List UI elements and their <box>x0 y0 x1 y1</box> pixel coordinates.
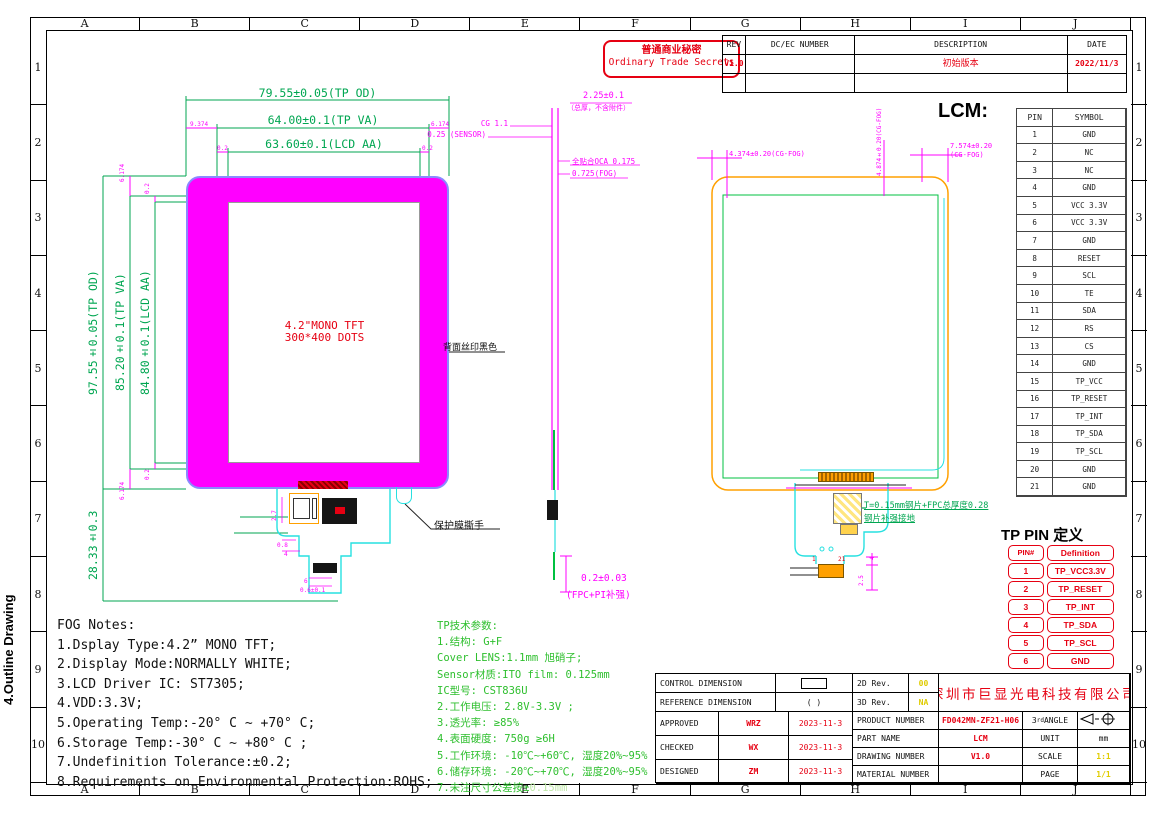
label-qr-box <box>322 498 357 524</box>
tp-parameter-line: IC型号: CST836U <box>437 683 647 699</box>
tp-parameter-line: 1.结构: G+F <box>437 634 647 650</box>
tp-pin-row: 6 GND <box>1008 653 1114 669</box>
side-view-connector <box>547 500 558 520</box>
pin-symbol: TP_SDA <box>1053 426 1126 444</box>
dim-fpc-small-2: 0.8 <box>277 542 288 549</box>
approved-date: 2023-11-3 <box>789 712 853 736</box>
revision-table: REV DC/EC NUMBER DESCRIPTION DATE V1.0 初… <box>722 35 1127 93</box>
pin-symbol: SDA <box>1053 303 1126 321</box>
fog-note-line: 7.Undefinition Tolerance:±0.2; <box>57 753 433 773</box>
pin-number: 1 <box>1017 127 1053 145</box>
description-empty <box>855 74 1068 93</box>
dim-connector-h: 2.5 <box>858 571 865 591</box>
lcm-pin-row: 12 RS <box>1017 320 1126 338</box>
control-dimension-label: CONTROL DIMENSION <box>656 674 776 693</box>
dcec-value <box>746 55 855 74</box>
tolerance-prefix: 7.未注尺寸公差按± <box>437 782 529 794</box>
dim-tp-va-height: 85.20±0.1(TP VA) <box>113 196 127 469</box>
third-angle-symbol <box>1078 712 1130 730</box>
protective-film-tab <box>396 487 412 504</box>
pin-symbol: TP_INT <box>1053 408 1126 426</box>
dim-fpc-small-3: 4 <box>284 551 288 558</box>
pin-symbol: GND <box>1053 232 1126 250</box>
dcec-header: DC/EC NUMBER <box>746 36 855 55</box>
dim-fog: 0.725(FOG) <box>572 169 617 178</box>
product-number-label: PRODUCT NUMBER <box>853 712 939 730</box>
pin-symbol: TP_RESET <box>1053 391 1126 409</box>
front-connector <box>313 563 337 573</box>
lcm-pin-row: 1 GND <box>1017 127 1126 145</box>
material-number-label: MATERIAL NUMBER <box>853 766 939 784</box>
rev-2d-label: 2D Rev. <box>853 674 909 693</box>
pin-symbol: RS <box>1053 320 1126 338</box>
tp-pin-number: 3 <box>1008 599 1044 615</box>
pin-number: 16 <box>1017 391 1053 409</box>
tp-pin-definition: TP_VCC3.3V <box>1047 563 1114 579</box>
pin-number: 4 <box>1017 179 1053 197</box>
pin-symbol: TE <box>1053 285 1126 303</box>
checked-date: 2023-11-3 <box>789 736 853 760</box>
fog-note-line: 8.Requirements on Environmental Protecti… <box>57 773 433 793</box>
third-angle-label: 3rd ANGLE <box>1023 712 1078 730</box>
dim-fpc-small-4: 6 <box>304 578 308 585</box>
control-dimension-symbol <box>776 674 853 693</box>
drawing-number-value: V1.0 <box>939 748 1023 766</box>
revision-row-empty <box>723 74 1127 93</box>
rev-empty <box>723 74 746 93</box>
tp-parameters: TP技术参数: 1.结构: G+FCover LENS:1.1mm 旭硝子;Se… <box>437 618 647 796</box>
tp-pin-row: 3 TP_INT <box>1008 599 1114 615</box>
connector-pin-21: 21 <box>838 556 845 563</box>
angle-word: ANGLE <box>1044 716 1068 725</box>
lcm-pin-row: 10 TE <box>1017 285 1126 303</box>
dim-fpc-thickness: 0.2±0.03 <box>581 573 627 584</box>
steel-sheet-box <box>833 493 862 524</box>
scale-label: SCALE <box>1023 748 1078 766</box>
tp-pin-definition: TP_SCL <box>1047 635 1114 651</box>
angle-ordinal: rd <box>1037 717 1044 724</box>
lcm-pin-row: 13 CS <box>1017 338 1126 356</box>
fog-note-line: 6.Storage Temp:-30° C ~ +80° C ; <box>57 734 433 754</box>
leader-lines <box>405 345 820 575</box>
lcm-pin-row: 7 GND <box>1017 232 1126 250</box>
film-tab-label: 保护膜撕手 <box>434 517 484 532</box>
fpc-bond-strip <box>298 481 348 489</box>
tp-pin-definition: TP_INT <box>1047 599 1114 615</box>
tp-pin-table-title: TP PIN 定义 <box>1001 524 1083 545</box>
tp-pin-definition: TP_SDA <box>1047 617 1114 633</box>
lcm-header-row: PIN SYMBOL <box>1017 109 1126 127</box>
dim-fpc-thickness-note: (FPC+PI补强) <box>566 587 631 601</box>
tp-parameter-line: 6.储存环境: -20℃~+70℃, 湿度20%~95% <box>437 764 647 780</box>
tp-pin-definition: TP_RESET <box>1047 581 1114 597</box>
tp-pin-number: 2 <box>1008 581 1044 597</box>
title-block: CONTROL DIMENSION REFERENCE DIMENSION ( … <box>655 673 1131 783</box>
pin-number: 8 <box>1017 250 1053 268</box>
control-dim-box-icon <box>801 678 827 689</box>
tp-parameter-line: 5.工作环境: -10℃~+60℃, 湿度20%~95% <box>437 748 647 764</box>
fog-notes-items: 1.Dsplay Type:4.2” MONO TFT;2.Display Mo… <box>57 636 433 793</box>
pin-symbol: GND <box>1053 355 1126 373</box>
company-name: 深圳市巨显光电科技有限公司 <box>939 674 1130 712</box>
lcm-pin-rows: 1 GND 2 NC 3 NC 4 GND <box>1017 127 1126 496</box>
pin-number: 9 <box>1017 267 1053 285</box>
dim-fpc-height: 28.33±0.3 <box>86 489 100 601</box>
tp-parameter-line: 3.透光率: ≥85% <box>437 715 647 731</box>
part-name-value: LCM <box>939 730 1023 748</box>
drawing-number-label: DRAWING NUMBER <box>853 748 939 766</box>
lcm-pin-row: 21 GND <box>1017 478 1126 496</box>
tp-pin-table: PIN# Definition 1 TP_VCC3.3V 2 TP_RESET … <box>1008 545 1114 671</box>
pin-number: 13 <box>1017 338 1053 356</box>
lcm-pin-row: 19 TP_SCL <box>1017 443 1126 461</box>
reference-dimension-label: REFERENCE DIMENSION <box>656 693 776 712</box>
designed-label: DESIGNED <box>656 760 719 784</box>
page-value: 1/1 <box>1078 766 1130 784</box>
pin-number: 18 <box>1017 426 1053 444</box>
tp-pin-row: 4 TP_SDA <box>1008 617 1114 633</box>
tp-parameter-line: Sensor材质:ITO film: 0.125mm <box>437 667 647 683</box>
dim-cg-fog-mid: 4.874±0.20(CG-FOG) <box>876 116 883 176</box>
pin-number: 20 <box>1017 461 1053 479</box>
dim-fpc-small-5: 0.6±0.1 <box>300 587 325 594</box>
tp-pin-number: 6 <box>1008 653 1044 669</box>
tp-pin-row: 1 TP_VCC3.3V <box>1008 563 1114 579</box>
stamp-line-cn: 普通商业秘密 <box>605 44 738 57</box>
lcm-pin-row: 6 VCC 3.3V <box>1017 215 1126 233</box>
checked-value: WX <box>719 736 789 760</box>
tp-pin-row: 5 TP_SCL <box>1008 635 1114 651</box>
tp-parameters-title: TP技术参数: <box>437 618 647 634</box>
dim-tp-va-width: 64.00±0.1(TP VA) <box>217 113 429 127</box>
dim-total-thickness-note: （总厚，不含附件） <box>567 103 630 113</box>
pin-number: 2 <box>1017 144 1053 162</box>
panel-resolution: 300*400 DOTS <box>262 332 387 344</box>
steel-note-line1: T=0.15mm钢片+FPC总厚度0.28 <box>864 499 988 511</box>
pin-number: 6 <box>1017 215 1053 233</box>
tp-pin-rows: 1 TP_VCC3.3V 2 TP_RESET 3 TP_INT 4 TP_SD… <box>1008 563 1114 669</box>
pin-number: 21 <box>1017 478 1053 496</box>
lcm-pin-table: PIN SYMBOL 1 GND 2 NC 3 NC <box>1016 108 1127 497</box>
tp-parameters-items: 1.结构: G+FCover LENS:1.1mm 旭硝子;Sensor材质:I… <box>437 634 647 780</box>
dim-lcd-aa-width: 63.60±0.1(LCD AA) <box>228 137 420 151</box>
tp-pin-number: 4 <box>1008 617 1044 633</box>
pin-symbol: TP_VCC <box>1053 373 1126 391</box>
approved-label: APPROVED <box>656 712 719 736</box>
designed-value: ZM <box>719 760 789 784</box>
approved-value: WRZ <box>719 712 789 736</box>
tp-pin-number: 1 <box>1008 563 1044 579</box>
dim-aa-offset-right: 0.2 <box>422 145 433 152</box>
tp-parameter-line: Cover LENS:1.1mm 旭硝子; <box>437 650 647 666</box>
pin-symbol: RESET <box>1053 250 1126 268</box>
pin-number: 5 <box>1017 197 1053 215</box>
pin-number: 7 <box>1017 232 1053 250</box>
lcm-pin-row: 8 RESET <box>1017 250 1126 268</box>
fog-notes: FOG Notes: 1.Dsplay Type:4.2” MONO TFT;2… <box>57 616 433 792</box>
side-view-lines <box>488 103 640 592</box>
steel-note-line2: 钢片补强接地 <box>864 512 915 524</box>
dim-cg-fog-right-2: (CG-FOG) <box>950 151 984 159</box>
fog-note-line: 1.Dsplay Type:4.2” MONO TFT; <box>57 636 433 656</box>
symbol-col-header: SYMBOL <box>1053 109 1126 127</box>
dim-offset-top: 6.174 <box>119 152 126 194</box>
dim-cg-fog-left: 4.374±0.20(CG-FOG) <box>729 150 805 158</box>
dim-oca: 全贴合OCA 0.175 <box>572 156 635 167</box>
back-connector <box>818 564 844 578</box>
fog-notes-title: FOG Notes: <box>57 616 433 636</box>
panel-spec-text: 4.2"MONO TFT 300*400 DOTS <box>262 320 387 344</box>
tp-parameter-last-line: 7.未注尺寸公差按±0.15mm <box>437 780 647 796</box>
reference-dimension-symbol: ( ) <box>776 693 853 712</box>
back-silkscreen-label: 背面丝印黑色 <box>443 340 497 353</box>
lcm-pin-row: 11 SDA <box>1017 303 1126 321</box>
scale-value: 1:1 <box>1078 748 1130 766</box>
lcm-pin-row: 2 NC <box>1017 144 1126 162</box>
pin-symbol: GND <box>1053 179 1126 197</box>
dim-total-thickness: 2.25±0.1 <box>583 91 624 101</box>
material-number-value <box>939 766 1023 784</box>
pin-symbol: GND <box>1053 461 1126 479</box>
unit-label: UNIT <box>1023 730 1078 748</box>
dcec-empty <box>746 74 855 93</box>
lcm-pin-row: 17 TP_INT <box>1017 408 1126 426</box>
checked-label: CHECKED <box>656 736 719 760</box>
lcm-pin-row: 14 GND <box>1017 355 1126 373</box>
tolerance-value: 0.15mm <box>529 782 567 794</box>
part-name-label: PART NAME <box>853 730 939 748</box>
pin-symbol: CS <box>1053 338 1126 356</box>
fpc-ic-box <box>293 498 310 519</box>
dim-cover-glass: CG 1.1 <box>470 119 508 128</box>
tp-def-col-header: Definition <box>1047 545 1114 561</box>
pin-number: 19 <box>1017 443 1053 461</box>
dim-tp-od-height: 97.55±0.05(TP OD) <box>86 176 100 489</box>
dim-tp-od-width: 79.55±0.05(TP OD) <box>186 86 449 100</box>
fog-note-line: 5.Operating Temp:-20° C ~ +70° C; <box>57 714 433 734</box>
revision-row: V1.0 初始版本 2022/11/3 <box>723 55 1127 74</box>
page-label: PAGE <box>1023 766 1078 784</box>
tp-pin-row: 2 TP_RESET <box>1008 581 1114 597</box>
pin-symbol: GND <box>1053 127 1126 145</box>
description-value: 初始版本 <box>855 55 1068 74</box>
back-dimension-lines <box>697 140 962 590</box>
dim-offset-right: 6.174 <box>431 121 449 128</box>
steel-sheet-tab <box>840 524 858 535</box>
date-header: DATE <box>1068 36 1127 55</box>
trade-secret-stamp: 普通商业秘密 Ordinary Trade Secrets <box>603 40 740 78</box>
pin-symbol: NC <box>1053 144 1126 162</box>
lcm-pin-row: 5 VCC 3.3V <box>1017 197 1126 215</box>
dim-lcd-aa-height: 84.80±0.1(LCD AA) <box>138 202 152 463</box>
pin-number: 10 <box>1017 285 1053 303</box>
connector-pin-1: 1 <box>812 556 816 563</box>
rev-2d-value: 00 <box>909 674 939 693</box>
date-empty <box>1068 74 1127 93</box>
lcm-pin-row: 18 TP_SDA <box>1017 426 1126 444</box>
rev-3d-label: 3D Rev. <box>853 693 909 712</box>
rev-3d-value: NA <box>909 693 939 712</box>
tp-parameter-line: 4.表面硬度: 750g ≥6H <box>437 731 647 747</box>
lcm-pin-row: 16 TP_RESET <box>1017 391 1126 409</box>
pin-symbol: NC <box>1053 162 1126 180</box>
dim-sensor: 0.25 (SENSOR) <box>422 130 486 139</box>
dim-connector-w: 4 <box>869 552 876 564</box>
pin-number: 14 <box>1017 355 1053 373</box>
revision-header-row: REV DC/EC NUMBER DESCRIPTION DATE <box>723 36 1127 55</box>
outline-drawing-sheet: 4.Outline Drawing ABCDEFGHIJ ABCDEFGHIJ … <box>0 0 1159 814</box>
fog-note-line: 3.LCD Driver IC: ST7305; <box>57 675 433 695</box>
dim-aa-offset-left: 0.2 <box>217 145 228 152</box>
back-contact-strip <box>818 472 874 482</box>
description-header: DESCRIPTION <box>855 36 1068 55</box>
dim-aa-offset-bottom: 0.2 <box>144 464 151 486</box>
lcm-table-title: LCM: <box>938 100 988 123</box>
lcm-pin-row: 4 GND <box>1017 179 1126 197</box>
lcm-pin-row: 9 SCL <box>1017 267 1126 285</box>
lcm-pin-row: 20 GND <box>1017 461 1126 479</box>
dim-offset-bottom: 6.174 <box>119 470 126 512</box>
pin-symbol: VCC 3.3V <box>1053 197 1126 215</box>
lcm-pin-row: 15 TP_VCC <box>1017 373 1126 391</box>
pin-number: 12 <box>1017 320 1053 338</box>
pin-symbol: SCL <box>1053 267 1126 285</box>
third-angle-projection-icon <box>1078 712 1120 726</box>
dim-offset-left: 9.374 <box>190 121 208 128</box>
designed-date: 2023-11-3 <box>789 760 853 784</box>
dim-cg-fog-right-1: 7.574±0.20 <box>950 142 992 150</box>
pin-symbol: GND <box>1053 478 1126 496</box>
fpc-ic-bar <box>312 498 317 519</box>
tp-parameter-line: 2.工作电压: 2.8V-3.3V ; <box>437 699 647 715</box>
dim-fpc-small-1: 2.7 <box>271 506 278 526</box>
pin-col-header: PIN <box>1017 109 1053 127</box>
unit-value: mm <box>1078 730 1130 748</box>
tp-pin-number: 5 <box>1008 635 1044 651</box>
rev-header: REV <box>723 36 746 55</box>
pin-number: 17 <box>1017 408 1053 426</box>
fog-note-line: 4.VDD:3.3V; <box>57 694 433 714</box>
pin-symbol: TP_SCL <box>1053 443 1126 461</box>
date-value: 2022/11/3 <box>1068 55 1127 74</box>
pin-number: 3 <box>1017 162 1053 180</box>
pin-number: 15 <box>1017 373 1053 391</box>
stamp-line-en: Ordinary Trade Secrets <box>605 57 738 69</box>
rev-value: V1.0 <box>723 55 746 74</box>
tp-pin-header-row: PIN# Definition <box>1008 545 1114 561</box>
product-number-value: FD042MN-ZF21-H06 <box>939 712 1023 730</box>
lcm-pin-row: 3 NC <box>1017 162 1126 180</box>
tp-pin-definition: GND <box>1047 653 1114 669</box>
pin-number: 11 <box>1017 303 1053 321</box>
tp-pin-col-header: PIN# <box>1008 545 1044 561</box>
fog-note-line: 2.Display Mode:NORMALLY WHITE; <box>57 655 433 675</box>
pin-symbol: VCC 3.3V <box>1053 215 1126 233</box>
dim-aa-offset-top: 0.2 <box>144 178 151 200</box>
